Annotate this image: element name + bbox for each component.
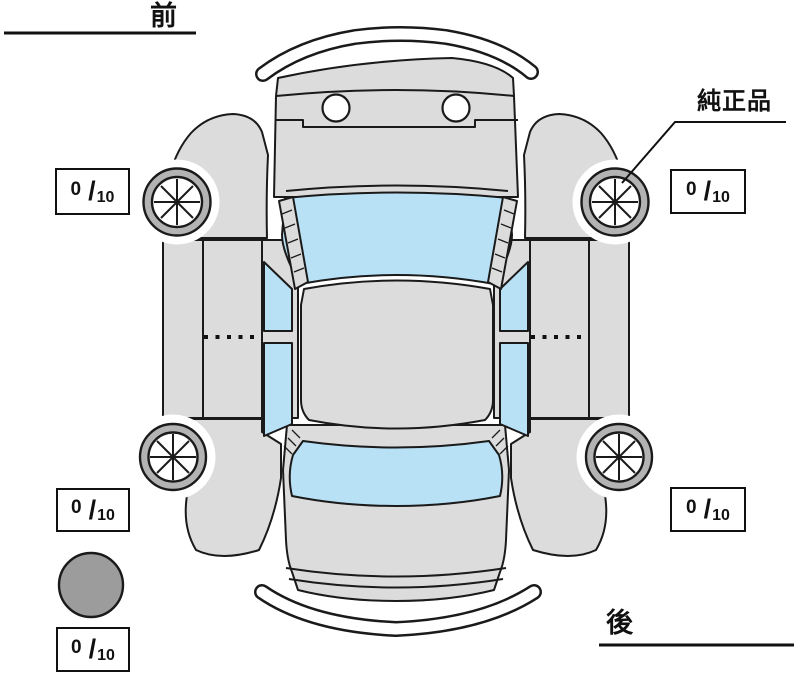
car-top-view-drawing — [0, 0, 800, 675]
tread-denominator: 10 — [97, 189, 115, 207]
tread-slash: / — [704, 176, 712, 207]
tread-value: 0 — [71, 637, 82, 659]
tread-slash: / — [88, 176, 96, 207]
hood-and-front-panel — [274, 58, 518, 197]
tread-depth-box-front-right: 0 / 10 — [670, 169, 746, 214]
rear-right-wheel-icon — [586, 424, 652, 490]
tread-denominator: 10 — [97, 507, 115, 525]
tread-depth-box-rear-left: 0 / 10 — [56, 488, 130, 532]
tread-slash: / — [89, 634, 97, 665]
tread-value: 0 — [71, 179, 82, 201]
rear-label: 後 — [606, 610, 633, 637]
tread-value: 0 — [686, 179, 697, 201]
windshield — [282, 193, 512, 285]
left-headlight-icon — [323, 95, 350, 122]
vehicle-condition-diagram: 前 純正品 後 0 / 10 0 / 10 0 / 10 0 / 10 0 / … — [0, 0, 800, 675]
tread-denominator: 10 — [712, 507, 730, 525]
tread-depth-box-rear-right: 0 / 10 — [670, 487, 746, 532]
tread-depth-box-spare: 0 / 10 — [56, 627, 130, 672]
rear-window — [290, 441, 503, 506]
tread-denominator: 10 — [97, 647, 115, 665]
front-left-wheel-icon — [144, 169, 211, 236]
tread-denominator: 10 — [712, 189, 730, 207]
right-rear-side-window — [500, 343, 528, 436]
spare-tire-icon — [59, 553, 123, 617]
tread-value: 0 — [71, 497, 82, 519]
tread-slash: / — [704, 494, 712, 525]
tread-value: 0 — [686, 497, 697, 519]
rear-left-wheel-icon — [140, 424, 206, 490]
front-right-wheel-icon — [582, 169, 649, 236]
tread-slash: / — [89, 495, 97, 526]
genuine-part-label: 純正品 — [697, 90, 772, 114]
right-headlight-icon — [443, 95, 470, 122]
tread-depth-box-front-left: 0 / 10 — [55, 168, 130, 215]
left-rear-side-window — [264, 343, 292, 436]
front-label: 前 — [150, 3, 177, 30]
roof-panel — [301, 281, 493, 429]
